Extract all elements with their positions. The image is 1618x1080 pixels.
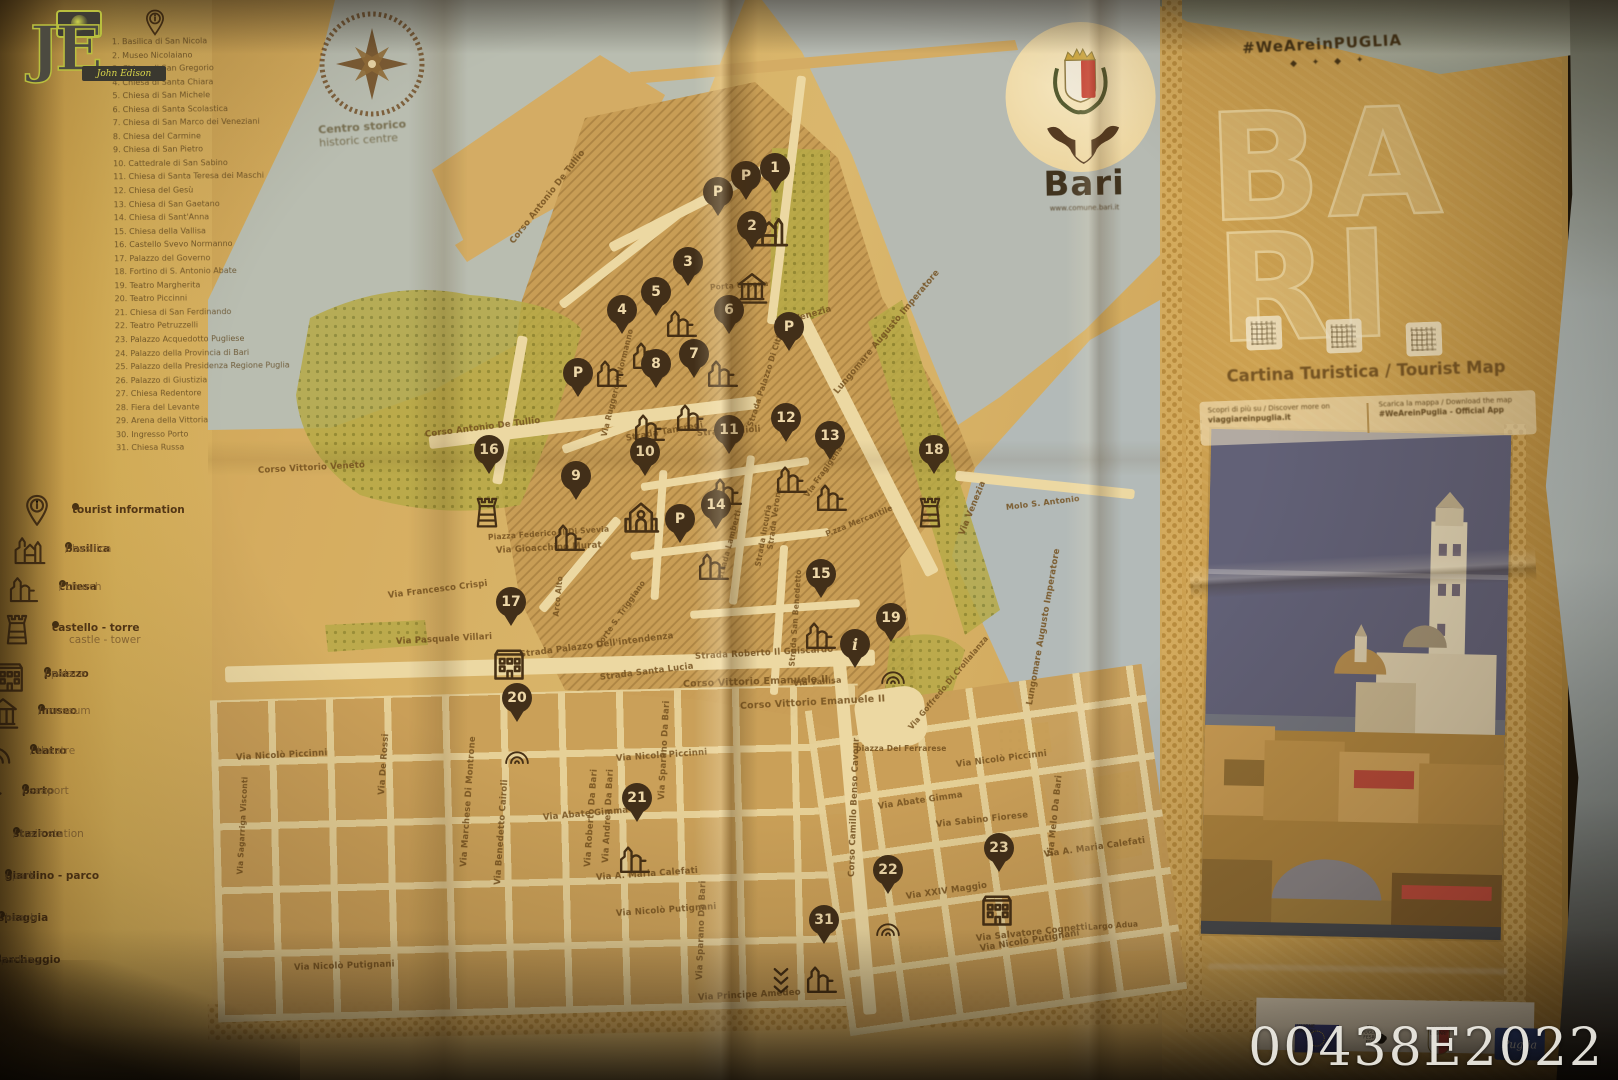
map-pin-4: 4 [607, 295, 637, 325]
tourist-info-pin: i [840, 629, 870, 659]
parking-pin: P [703, 177, 733, 207]
city-logo-website: www.comune.bari.it [999, 203, 1169, 214]
info-divider [1366, 403, 1369, 433]
palazzo-poi-icon [489, 644, 529, 680]
map-pin-18: 18 [919, 435, 949, 465]
cathedral-poi-icon [618, 496, 664, 536]
church-icon [5, 571, 43, 605]
palazzo-icon [0, 658, 28, 692]
map-pin-23: 23 [984, 833, 1014, 863]
map-pin-7: 7 [679, 339, 709, 369]
image-code-watermark: 00438E2022 [1248, 1018, 1604, 1078]
theatre-poi-icon [874, 662, 912, 688]
compass-rose: Centro storico historic centre [300, 10, 470, 160]
street-label: piazza Del Ferrarese [856, 744, 947, 753]
compass-icon [300, 10, 450, 120]
map-pin-8: 8 [641, 349, 671, 379]
church-poi-icon [800, 616, 842, 652]
church-poi-icon [671, 398, 713, 434]
dotted-band-inset-left [1186, 420, 1202, 1012]
anchor-icon [0, 775, 6, 809]
church-poi-icon [693, 547, 735, 583]
palazzo-poi-icon [977, 890, 1017, 926]
map-pin-21: 21 [622, 783, 652, 813]
basilica-icon [11, 533, 49, 567]
qr-code [1405, 321, 1442, 356]
map-pin-15: 15 [806, 559, 836, 589]
photographer-name: John Edison [82, 66, 166, 81]
map-pin-12: 12 [771, 403, 801, 433]
tower-icon [0, 612, 36, 646]
tower-poi-icon [913, 492, 947, 532]
photographed-tourist-map: 1. Basilica di San Nicola2. Museo Nicola… [0, 0, 1618, 1080]
map-pin-6: 6 [714, 295, 744, 325]
map-pin-11: 11 [714, 415, 744, 445]
parking-pin: P [563, 358, 593, 388]
map-pin-1: 1 [760, 153, 790, 183]
bari-city-logo: Bari www.comune.bari.it [996, 15, 1170, 228]
coat-of-arms-icon [1047, 37, 1114, 124]
map-pin-17: 17 [496, 587, 526, 617]
city-logo-name: Bari [999, 163, 1170, 206]
tower-poi-icon [470, 492, 504, 532]
qr-code [1325, 318, 1362, 353]
theatre-poi-icon [869, 914, 907, 940]
map-pin-14: 14 [701, 490, 731, 520]
russian-poi-icon [801, 960, 843, 996]
map-pin-2: 2 [737, 211, 767, 241]
bari-skyline-photo [1201, 429, 1512, 940]
map-pin-16: 16 [474, 435, 504, 465]
shadow-corner [0, 960, 300, 1080]
info-left-line2: viaggiareinpuglia.it [1208, 413, 1291, 425]
map-pin-19: 19 [876, 603, 906, 633]
parking-pin: P [731, 161, 761, 191]
map-pin-22: 22 [873, 855, 903, 885]
church-poi-icon [661, 304, 703, 340]
map-pin-20: 20 [502, 683, 532, 713]
map-pin-13: 13 [815, 421, 845, 451]
map-pin-9: 9 [561, 461, 591, 491]
chevrons-icon [772, 966, 790, 996]
map-pin-5: 5 [641, 277, 671, 307]
city-photo-inset [1201, 429, 1512, 940]
theatre-poi-icon [498, 742, 536, 768]
church-poi-icon [702, 354, 744, 390]
photographer-watermark: JE John Edison [22, 6, 182, 98]
bull-icon [1045, 121, 1122, 166]
qr-code [1245, 315, 1282, 350]
church-poi-icon [811, 478, 853, 514]
title-letters-ri: RI [1214, 229, 1399, 345]
map-pin-31: 31 [809, 905, 839, 935]
museum-icon [0, 695, 22, 729]
parking-pin: P [665, 504, 695, 534]
church-poi-icon [549, 518, 591, 554]
church-poi-icon [771, 460, 813, 496]
map-pin-10: 10 [630, 437, 660, 467]
church-poi-icon [614, 840, 656, 876]
map-pin-3: 3 [673, 247, 703, 277]
info-pin-icon [18, 494, 56, 528]
legend-item: 31. Chiesa Russa [116, 439, 356, 455]
parking-pin: P [774, 312, 804, 342]
theatre-icon [0, 735, 14, 769]
church-poi-icon [591, 354, 633, 390]
